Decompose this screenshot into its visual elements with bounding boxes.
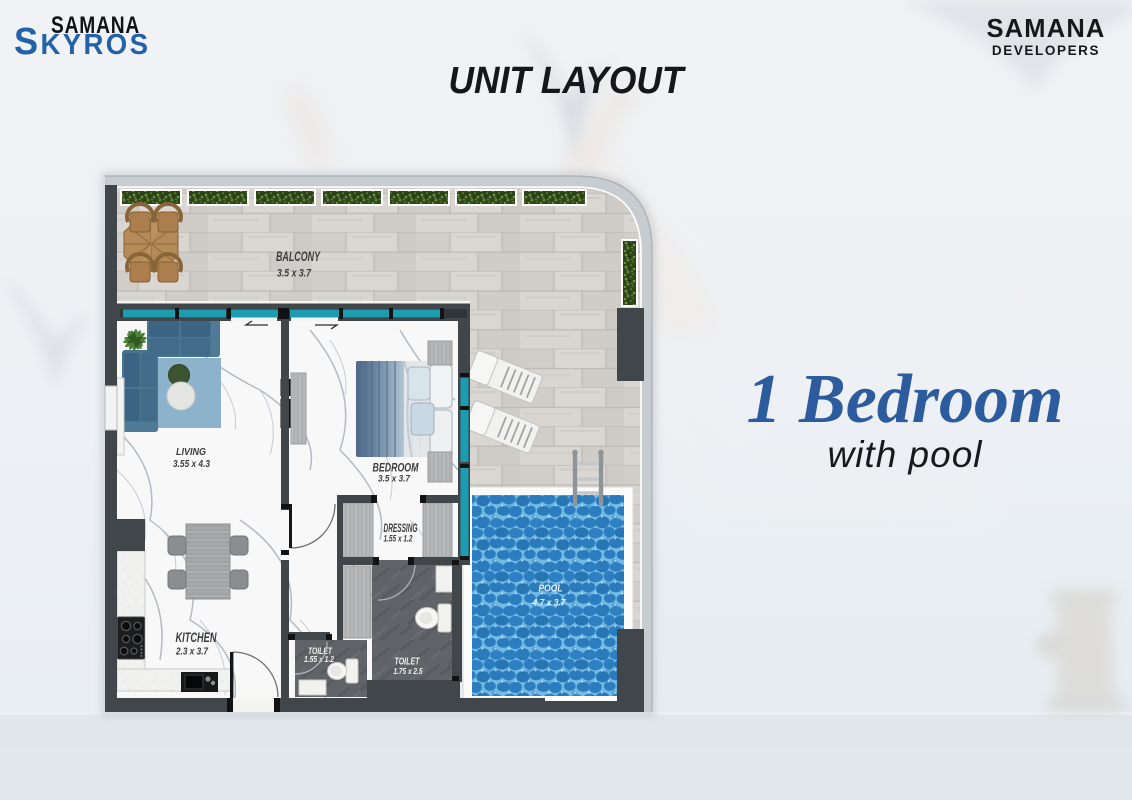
svg-text:POOL: POOL xyxy=(539,584,563,595)
svg-text:KITCHEN: KITCHEN xyxy=(176,630,217,645)
svg-text:4.7 x 3.7: 4.7 x 3.7 xyxy=(532,598,567,608)
svg-text:3.5 x 3.7: 3.5 x 3.7 xyxy=(277,268,312,280)
svg-text:BEDROOM: BEDROOM xyxy=(373,461,420,475)
svg-text:LIVING: LIVING xyxy=(176,446,206,458)
svg-text:BALCONY: BALCONY xyxy=(276,249,321,264)
svg-text:1.55 x 1.2: 1.55 x 1.2 xyxy=(384,534,413,544)
svg-text:TOILET: TOILET xyxy=(395,657,421,668)
svg-text:2.3 x 3.7: 2.3 x 3.7 xyxy=(175,646,209,658)
svg-text:3.5 x 3.7: 3.5 x 3.7 xyxy=(378,474,411,485)
svg-text:1.75 x 2.5: 1.75 x 2.5 xyxy=(394,667,423,676)
svg-text:3.55 x 4.3: 3.55 x 4.3 xyxy=(173,459,210,470)
